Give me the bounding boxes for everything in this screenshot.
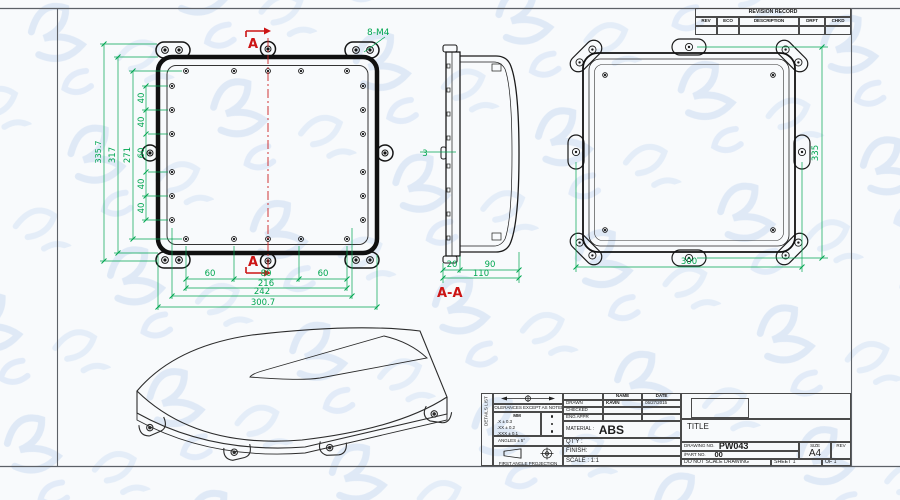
revision-table-title: REVISION RECORD bbox=[695, 8, 851, 17]
dim-300-7: 300.7 bbox=[251, 298, 275, 308]
do-not-scale-cell: DO NOT SCALE DRAWING bbox=[681, 459, 771, 466]
size-cell: SIZE A4 bbox=[799, 442, 831, 459]
dim-335: 335 bbox=[811, 145, 821, 161]
checked-date-cell bbox=[642, 407, 681, 414]
front-dim-labels: 40 40 60 40 40 271 317 335.7 60 80 60 21… bbox=[94, 28, 390, 308]
part-no-label: /PART NO. bbox=[684, 453, 706, 458]
dim-271: 271 bbox=[123, 147, 133, 163]
finish-cell: FINISH: bbox=[563, 446, 681, 456]
front-view: A A 40 40 60 40 40 271 317 335.7 60 80 6… bbox=[94, 28, 393, 311]
projection-caption: FIRST ANGLE PROJECTION bbox=[494, 460, 562, 466]
material-cell: MATERIAL : ABS bbox=[563, 421, 681, 438]
drawing-no-label: DRAWING NO. bbox=[684, 444, 714, 449]
revision-empty-row bbox=[825, 26, 851, 35]
front-screw-holes bbox=[170, 69, 366, 242]
front-dim-lines bbox=[100, 37, 385, 310]
material-label: MATERIAL : bbox=[566, 427, 594, 432]
dim-80: 80 bbox=[261, 269, 272, 279]
tolerance-table-right bbox=[541, 412, 563, 436]
qty-cell: QT'Y : bbox=[563, 438, 681, 446]
revision-col-description: DESCRIPTION bbox=[739, 17, 799, 26]
title-block: DETAILS LIST TOLERANCES EXCEPT AS NOTED … bbox=[481, 393, 851, 466]
dim-arrows-cell bbox=[493, 393, 563, 404]
drawing-sheet: { "revision_table": { "title": "REVISION… bbox=[0, 0, 900, 500]
drawn-label: DRAWN bbox=[563, 400, 603, 407]
details-list-strip: DETAILS LIST bbox=[481, 393, 493, 466]
thread-callout: 8-M4 bbox=[367, 28, 390, 38]
front-lid-face bbox=[167, 66, 368, 245]
projection-cell: FIRST ANGLE PROJECTION bbox=[493, 446, 563, 466]
section-view-label: A-A bbox=[437, 286, 463, 301]
name-header: NAME bbox=[603, 393, 642, 400]
title-cell: TITLE bbox=[681, 419, 851, 442]
dim-317: 317 bbox=[108, 147, 118, 163]
back-inner-holes bbox=[603, 73, 776, 233]
approvals-corner-cell bbox=[563, 393, 603, 400]
rev-cell: REV bbox=[831, 442, 851, 459]
part-no-cell: /PART NO. 00 bbox=[681, 451, 799, 459]
of-cell: OF 1 bbox=[822, 459, 851, 466]
dim-60-right: 60 bbox=[318, 269, 329, 279]
logo-box bbox=[691, 398, 749, 418]
drawing-no-value: PW043 bbox=[719, 442, 749, 451]
dim-60-left: 60 bbox=[205, 269, 216, 279]
dim-300: 300 bbox=[681, 257, 697, 267]
iso-feet bbox=[138, 404, 452, 461]
drawn-date: 05/27/2015 bbox=[642, 400, 681, 407]
angles-tolerance: ANGLES ± 5° bbox=[493, 436, 563, 446]
revision-empty-row bbox=[717, 26, 739, 35]
dim-40-3: 40 bbox=[137, 179, 147, 190]
dim-60-mid: 60 bbox=[137, 148, 147, 159]
dim-40-2: 40 bbox=[137, 117, 147, 128]
dim-335-7: 335.7 bbox=[94, 141, 103, 164]
dim-arrows-icon bbox=[500, 394, 556, 403]
dim-40-1: 40 bbox=[137, 93, 147, 104]
scale-cell: SCALE : 1:1 bbox=[563, 456, 681, 466]
checked-name-cell bbox=[603, 407, 642, 414]
tolerances-heading: TOLERANCES EXCEPT AS NOTED bbox=[493, 404, 563, 412]
section-view: 3 20 90 110 A-A bbox=[420, 45, 522, 301]
revision-empty-row bbox=[799, 26, 825, 35]
dim-242: 242 bbox=[254, 287, 270, 297]
eng-appr-label: ENG APPR bbox=[563, 414, 603, 421]
section-letter-top: A bbox=[248, 37, 258, 52]
tolerance-table-left: MM .X ± 0.3 .XX ± 0.2 .XXX ± 0.1 bbox=[493, 412, 541, 436]
material-value: ABS bbox=[599, 424, 624, 436]
checked-label: CHECKED bbox=[563, 407, 603, 414]
part-no-value: 00 bbox=[714, 451, 722, 459]
front-body-outline bbox=[158, 57, 377, 253]
section-dim-lines bbox=[420, 152, 522, 283]
revision-empty-row bbox=[695, 26, 717, 35]
eng-appr-date-cell bbox=[642, 414, 681, 421]
revision-empty-row bbox=[739, 26, 799, 35]
dim-20: 20 bbox=[447, 260, 458, 270]
dim-110: 110 bbox=[473, 269, 489, 279]
revision-col-eco: ECO bbox=[717, 17, 739, 26]
drawing-no-cell: DRAWING NO. PW043 bbox=[681, 442, 799, 451]
dim-3: 3 bbox=[422, 149, 427, 159]
eng-appr-name-cell bbox=[603, 414, 642, 421]
revision-col-rev: REV bbox=[695, 17, 717, 26]
isometric-view bbox=[137, 328, 452, 461]
first-angle-target-icon bbox=[540, 447, 554, 460]
section-letter-bottom: A bbox=[248, 255, 258, 270]
revision-col-drft: DRFT bbox=[799, 17, 825, 26]
dim-40-4: 40 bbox=[137, 203, 147, 214]
size-value: A4 bbox=[800, 449, 830, 459]
revision-col-chkd: CHKD bbox=[825, 17, 851, 26]
revision-record-table: REVISION RECORD REV ECO DESCRIPTION DRFT… bbox=[695, 8, 851, 35]
drawn-name: KAVIN bbox=[603, 400, 642, 407]
date-header: DATE bbox=[642, 393, 681, 400]
back-dim-lines bbox=[574, 45, 829, 273]
cone-projection-icon bbox=[502, 448, 524, 459]
back-view: 335 300 bbox=[567, 37, 828, 272]
logo-cell bbox=[681, 393, 851, 419]
sheet-cell: SHEET 1 bbox=[771, 459, 822, 466]
